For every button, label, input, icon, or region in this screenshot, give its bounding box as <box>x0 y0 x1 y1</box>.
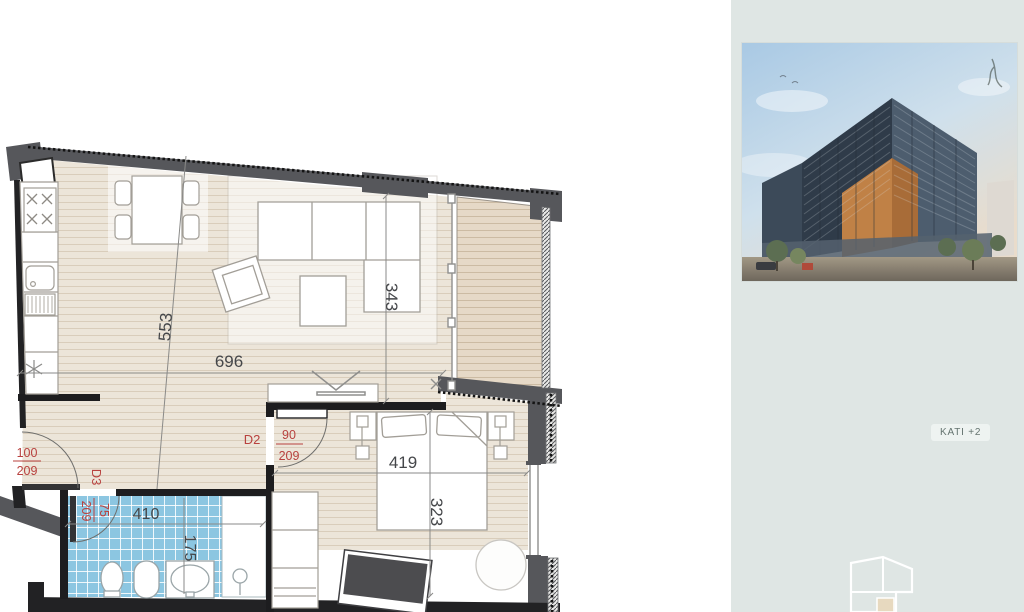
door-d2-width: 90 <box>282 428 296 442</box>
chair <box>183 215 199 239</box>
shopfront-accent <box>802 263 813 270</box>
chair <box>115 215 131 239</box>
balcony-deck <box>457 197 543 387</box>
dining-table <box>132 176 182 244</box>
dim-bathroom-depth: 175 <box>181 535 198 562</box>
bedroom-dresser <box>338 550 432 612</box>
dim-balcony-depth: 343 <box>382 283 401 311</box>
bedroom-window <box>526 461 541 559</box>
floor-badge[interactable]: KATI +2 <box>931 424 990 441</box>
toilet <box>101 562 123 594</box>
pillow <box>381 414 426 437</box>
door-d3-label: D3 <box>89 469 104 486</box>
door-d2-height: 209 <box>279 449 300 463</box>
dim-living-diagonal: 553 <box>155 312 176 342</box>
kitchen-sink <box>26 266 54 290</box>
wardrobe <box>272 492 318 608</box>
sink-drain-icon <box>31 282 36 287</box>
chair <box>115 181 131 205</box>
building-photo <box>742 43 1017 281</box>
mini-floorplan <box>843 546 939 612</box>
entrance-door-height: 209 <box>17 464 38 478</box>
washbasin <box>171 565 209 593</box>
door-d3-height: 209 <box>79 501 93 522</box>
bidet <box>134 561 159 598</box>
floor-plan-drawing: 696 553 343 419 323 410 175 100 209 D3 7… <box>0 0 731 612</box>
building-render <box>742 43 1017 281</box>
pouf <box>476 540 526 590</box>
vehicle <box>756 262 776 270</box>
dim-living-width: 696 <box>215 352 243 371</box>
kitchen <box>20 182 58 394</box>
dim-bedroom-width: 419 <box>389 453 417 472</box>
shower-head-icon <box>233 569 247 583</box>
floor-plan-area: 696 553 343 419 323 410 175 100 209 D3 7… <box>0 0 731 612</box>
dim-bedroom-depth: 323 <box>427 498 446 526</box>
entrance-door-width: 100 <box>17 446 38 460</box>
tv-cabinet <box>268 384 378 402</box>
faucet <box>186 592 194 597</box>
mini-floorplan-unit-highlight <box>877 598 894 612</box>
door-d2-label: D2 <box>244 432 261 447</box>
sidebar: KATI +2 <box>731 0 1024 612</box>
door-d3-width: 75 <box>97 503 111 517</box>
toilet-tank <box>104 591 120 597</box>
coffee-table <box>300 276 346 326</box>
chair <box>183 181 199 205</box>
floorplan-viewer-page: 696 553 343 419 323 410 175 100 209 D3 7… <box>0 0 1024 612</box>
dim-bathroom-width: 410 <box>133 506 160 523</box>
